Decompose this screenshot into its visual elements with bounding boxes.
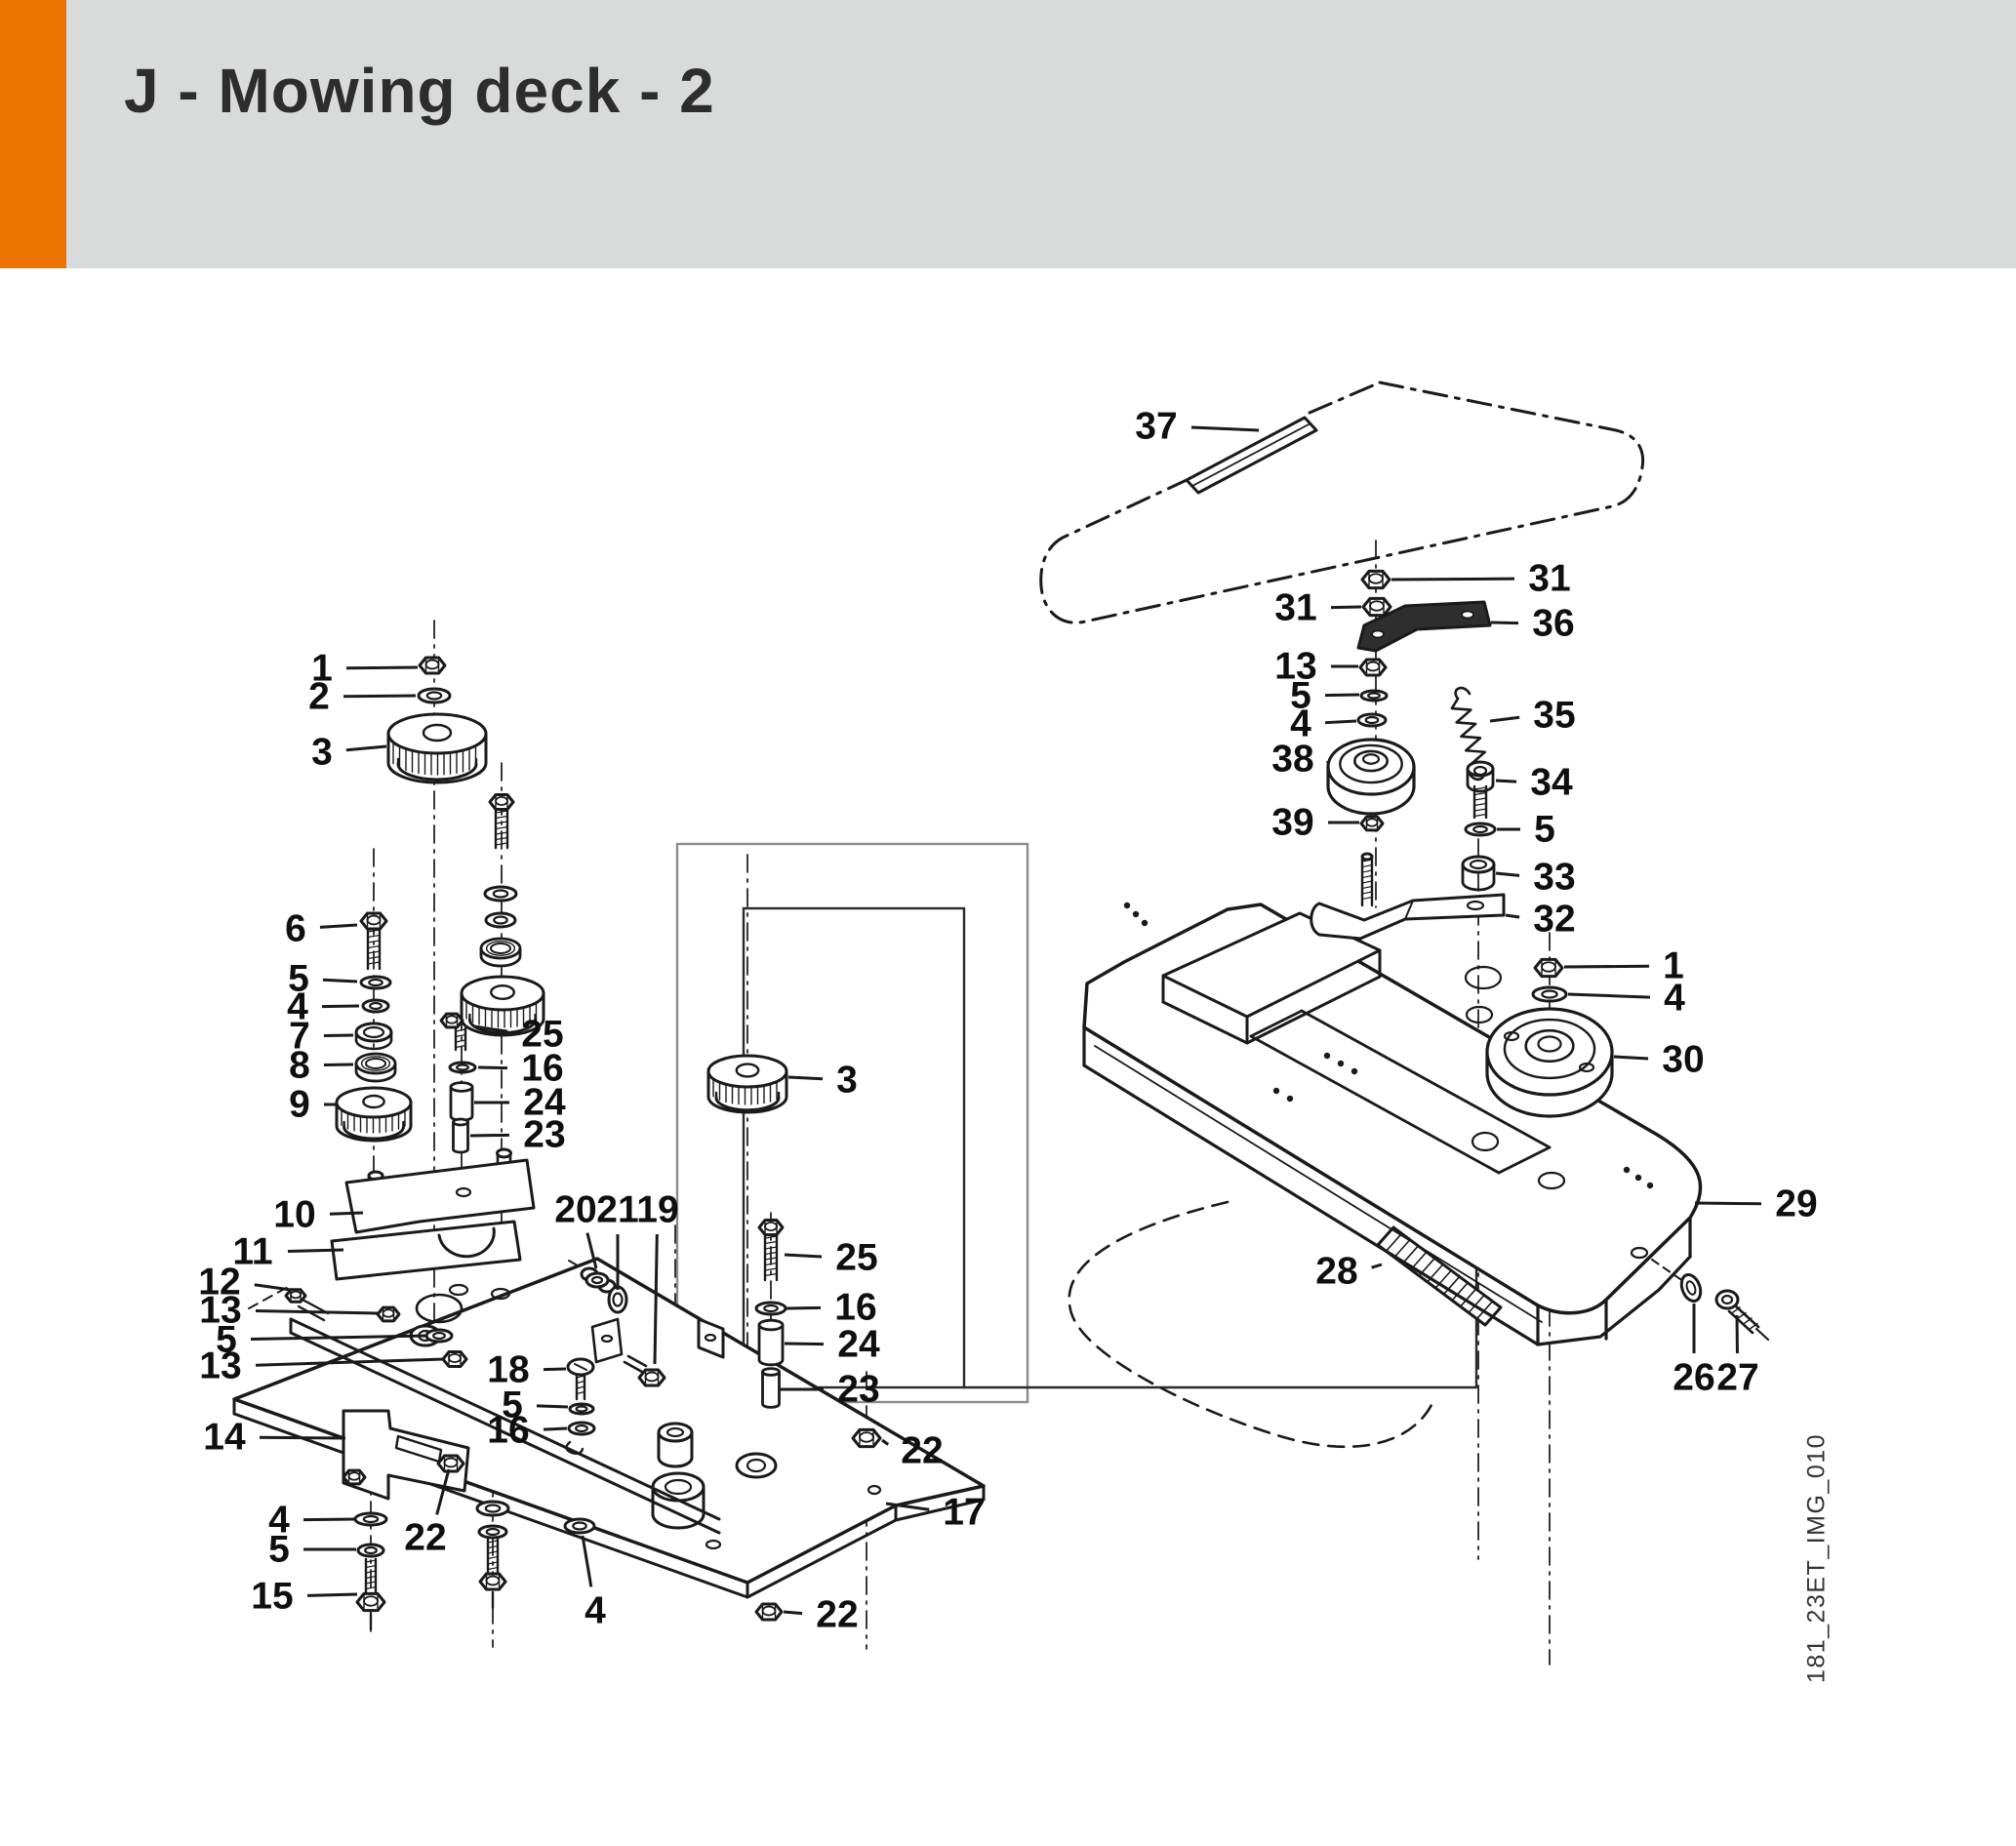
callout-38[interactable]: 38 [1271,741,1313,779]
callout-36[interactable]: 36 [1532,605,1574,643]
callout-21[interactable]: 21 [596,1191,638,1229]
callout-22[interactable]: 22 [816,1596,858,1634]
callout-5[interactable]: 5 [1534,811,1555,849]
callout-8[interactable]: 8 [289,1047,310,1085]
callout-22[interactable]: 22 [404,1519,446,1557]
callout-19[interactable]: 19 [636,1191,678,1229]
callout-37[interactable]: 37 [1135,408,1177,446]
callout-23[interactable]: 23 [837,1371,879,1409]
callout-16[interactable]: 16 [487,1412,529,1450]
callout-22[interactable]: 22 [901,1432,943,1470]
callout-10[interactable]: 10 [273,1196,315,1234]
callout-24[interactable]: 24 [837,1326,879,1364]
callout-23[interactable]: 23 [523,1116,565,1154]
callout-32[interactable]: 32 [1533,901,1575,939]
callout-28[interactable]: 28 [1315,1253,1357,1291]
callout-35[interactable]: 35 [1533,697,1575,735]
callout-30[interactable]: 30 [1662,1041,1704,1079]
callout-39[interactable]: 39 [1271,804,1313,842]
callout-31[interactable]: 31 [1528,560,1570,598]
callout-9[interactable]: 9 [289,1086,310,1124]
callout-27[interactable]: 27 [1716,1359,1758,1397]
callout-20[interactable]: 20 [554,1191,596,1229]
callout-4[interactable]: 4 [1664,980,1685,1018]
callout-25[interactable]: 25 [835,1239,877,1277]
callout-29[interactable]: 29 [1775,1185,1817,1224]
callout-17[interactable]: 17 [943,1494,985,1532]
callout-3[interactable]: 3 [311,734,333,772]
figure-code: 181_23ET_IMG_010 [1803,1433,1832,1683]
callout-3[interactable]: 3 [836,1062,858,1100]
callout-26[interactable]: 26 [1673,1359,1714,1397]
callout-33[interactable]: 33 [1533,859,1575,897]
callout-13[interactable]: 13 [199,1347,241,1385]
callout-2[interactable]: 2 [308,678,330,716]
callout-34[interactable]: 34 [1530,764,1572,802]
callout-6[interactable]: 6 [285,910,306,948]
callout-14[interactable]: 14 [203,1419,245,1457]
callout-31[interactable]: 31 [1274,589,1316,627]
parts-catalog-page: J - Mowing deck - 2 12365478925162423101… [0,0,2016,1846]
callout-4[interactable]: 4 [585,1592,606,1630]
callout-16[interactable]: 16 [834,1289,876,1327]
callout-5[interactable]: 5 [268,1531,290,1569]
callout-15[interactable]: 15 [251,1578,293,1616]
